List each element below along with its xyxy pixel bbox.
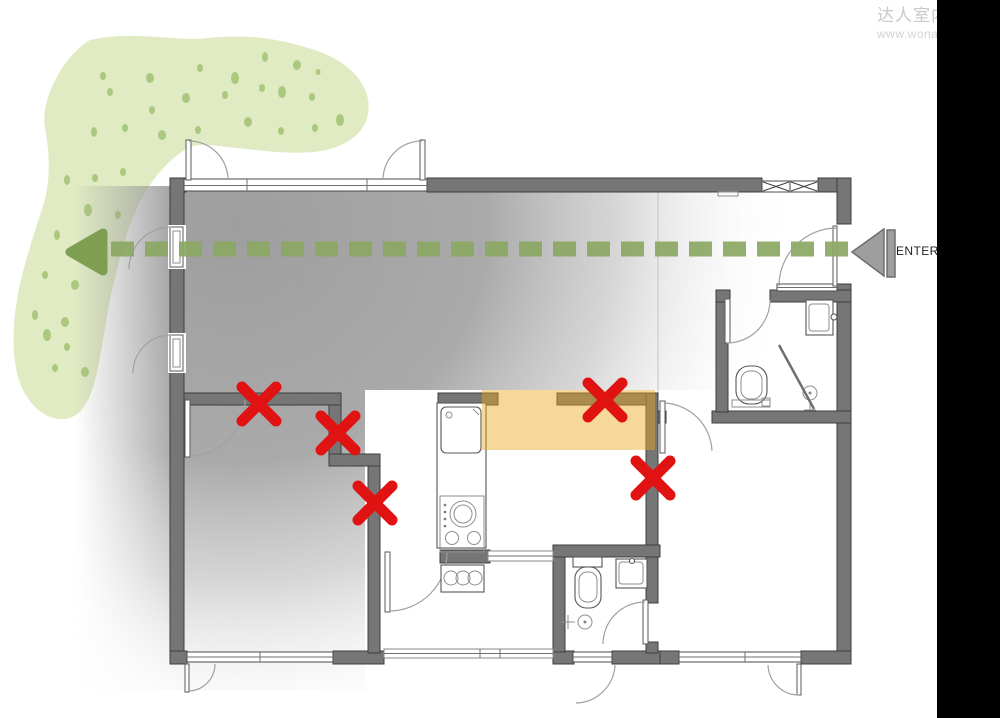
floor-plan-diagram: [0, 0, 1000, 718]
floor-plan-canvas: 达人室内 www.wona: [0, 0, 1000, 718]
bathroom-bottom-fixtures: [561, 557, 647, 629]
kitchen-fixtures: [437, 403, 486, 592]
right-sidebar-panel: [937, 0, 1000, 718]
enter-arrow-icon: [852, 229, 895, 277]
enter-label: ENTER: [896, 244, 939, 258]
highlight-area: [482, 390, 655, 450]
